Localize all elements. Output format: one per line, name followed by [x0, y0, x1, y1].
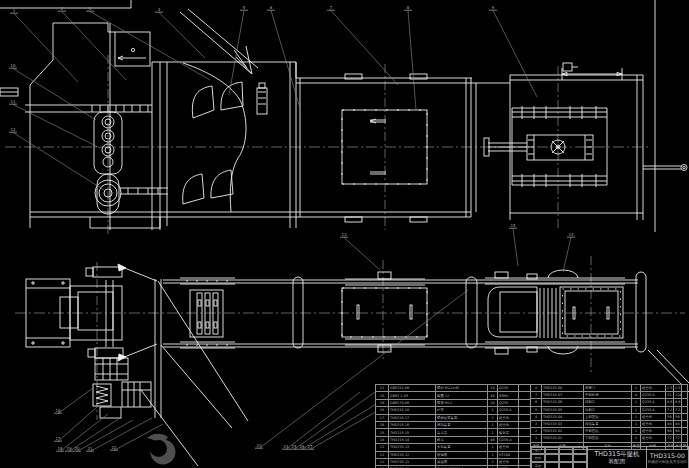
signature-cell: [573, 447, 587, 454]
signature-cell: 审核: [531, 462, 545, 468]
bom-row: 19GB6170-86螺母 M1224Q235: [376, 399, 531, 406]
bom-row: 4THD315-04上部区段1组合件5656: [531, 413, 688, 420]
leader-line: [58, 388, 93, 414]
title-cell: THD315斗提机 装配图: [587, 447, 647, 468]
callout-label: 11: [10, 99, 16, 104]
bom-row: 15THD315-15畚斗带1橡胶带: [376, 429, 531, 436]
leader-line: [77, 420, 133, 452]
leader-line: [14, 14, 78, 83]
signature-cell: 校核: [531, 454, 545, 461]
title-block: 设计校核审核 THD315斗提机 装配图 THD315-00 机械设计制造及其自…: [530, 446, 689, 468]
signature-grid: 设计校核审核: [531, 447, 587, 468]
bom-row: 14THD315-14料斗46Q235-A: [376, 436, 531, 443]
callout-label: 12: [10, 127, 16, 132]
signature-cell: [573, 462, 587, 468]
drawing-view-label: 装配图: [588, 458, 646, 465]
callout-label: 7: [330, 5, 333, 10]
callout-label: 18: [57, 446, 63, 451]
signature-cell: [559, 447, 573, 454]
signature-cell: [573, 454, 587, 461]
callout-label: 13: [341, 232, 347, 237]
leader-line: [331, 11, 398, 86]
bom-row: 6THD315-06进料口1Q235-A8.68.6: [531, 399, 688, 406]
callout-label: 23: [256, 443, 262, 448]
leader-line: [493, 11, 537, 98]
signature-cell: [559, 454, 573, 461]
number-cell: THD315-00 机械设计制造及其自动化: [647, 447, 688, 468]
callout-label: 14: [568, 232, 574, 237]
leader-line: [271, 11, 300, 109]
callout-label: 6: [270, 5, 273, 10]
callout-label: 19: [66, 446, 72, 451]
leader-line: [159, 13, 205, 59]
callout-label: 5: [243, 5, 246, 10]
leader-line: [13, 133, 104, 191]
signature-cell: [545, 462, 559, 468]
leader-line: [408, 11, 416, 111]
callout-label: 10: [10, 63, 16, 68]
bom-row: 2THD315-02中部区段1组合件6464: [531, 428, 688, 435]
callout-label: 8: [407, 5, 410, 10]
bom-row: 11THD315-11减速器1组合件: [376, 458, 531, 465]
callout-label: 24: [283, 444, 289, 449]
callout-label: 2: [61, 6, 64, 11]
ink-blob: [147, 434, 176, 465]
leader-line: [344, 238, 380, 271]
signature-cell: [545, 454, 559, 461]
bom-row: 17THD315-17螺旋拉紧装置2组合件: [376, 414, 531, 421]
bom-row: 3THD315-03传动装置1组合件8888: [531, 420, 688, 427]
callout-label: 26: [299, 444, 305, 449]
callout-label: 3: [89, 6, 92, 11]
callout-label: 4: [158, 7, 161, 12]
callout-label: 25: [291, 444, 297, 449]
callout-label: 20: [74, 446, 80, 451]
bom-row: 7THD315-07中部机壳4Q235-A31124: [531, 392, 688, 399]
bom-row: 5THD315-05卸料口1Q235-A7.27.2: [531, 406, 688, 413]
drawing-number: THD315-00: [647, 452, 688, 460]
callout-label: 17: [55, 436, 61, 441]
leader-line: [513, 229, 518, 267]
drawing-name: THD315斗提机: [588, 451, 646, 458]
callout-label: 21: [87, 446, 93, 451]
callout-label: 16: [55, 408, 61, 413]
leader-line: [563, 238, 571, 273]
bom-row: 16THD315-16尾轮装置1组合件: [376, 421, 531, 428]
front-view: [0, 0, 687, 232]
bom-row: 1THD315-01下部区段1组合件7272: [531, 435, 688, 442]
bom-row: 20GB97.1-85垫圈 124865Mn: [376, 392, 531, 399]
leader-line: [62, 12, 126, 81]
callout-label: 22: [111, 445, 117, 450]
leader-line: [294, 390, 378, 450]
leader-line: [13, 105, 100, 149]
signature-cell: [559, 462, 573, 468]
parts-list-left: 21GB5782-86螺栓 M12×4524Q23520GB97.1-85垫圈 …: [375, 384, 531, 468]
signature-cell: 设计: [531, 447, 545, 454]
parts-list-right: 8THD315-08观察门1组合件2.52.57THD315-07中部机壳4Q2…: [530, 384, 688, 450]
callout-label: 27: [307, 444, 313, 449]
callout-label: 9: [492, 5, 495, 10]
callout-label: 15: [510, 223, 516, 228]
signature-cell: [545, 447, 559, 454]
cad-drawing-page: 1234567891011121314151617181920212223242…: [0, 0, 689, 468]
bom-row: 12THD315-12联轴器1HT200: [376, 451, 531, 458]
bom-row: 8THD315-08观察门1组合件2.52.5: [531, 385, 688, 392]
bom-row: 13THD315-13头轮装置1组合件: [376, 444, 531, 451]
organization-name: 机械设计制造及其自动化: [647, 460, 688, 465]
bom-row: 18THD315-18护罩1Q235-A: [376, 407, 531, 414]
callout-label: 1: [13, 8, 16, 13]
bom-row: 21GB5782-86螺栓 M12×4524Q235: [376, 385, 531, 392]
